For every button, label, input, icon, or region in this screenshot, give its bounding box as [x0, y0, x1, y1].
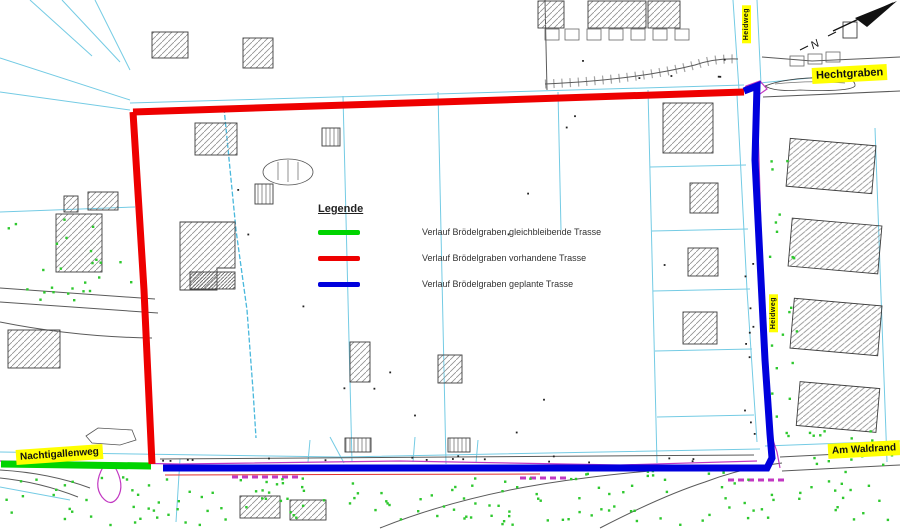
legend-label: Verlauf Brödelgraben geplante Trasse: [422, 279, 573, 289]
legend-swatch-green: [318, 230, 360, 235]
north-arrow-letter: N: [809, 38, 822, 52]
route-red-existing-left: [133, 112, 152, 464]
legend-label: Verlauf Brödelgraben gleichbleibende Tra…: [422, 227, 601, 237]
legend-row-existing: Verlauf Brödelgraben vorhandene Trasse: [318, 253, 638, 263]
site-plan-map: N Legende Verlauf Brödelgraben gleichble…: [0, 0, 900, 529]
legend: Legende Verlauf Brödelgraben gleichbleib…: [318, 203, 638, 305]
street-label-heidweg-top: Heidweg: [742, 5, 751, 43]
legend-label: Verlauf Brödelgraben vorhandene Trasse: [422, 253, 586, 263]
legend-row-planned: Verlauf Brödelgraben geplante Trasse: [318, 279, 638, 289]
legend-title: Legende: [318, 203, 638, 215]
legend-swatch-blue: [318, 282, 360, 287]
north-arrow: N: [800, 1, 897, 52]
street-label-heidweg-right: Heidweg: [769, 294, 778, 332]
thin-red-line: [165, 474, 540, 475]
legend-swatch-red: [318, 256, 360, 261]
legend-row-unchanged: Verlauf Brödelgraben gleichbleibende Tra…: [318, 227, 638, 237]
